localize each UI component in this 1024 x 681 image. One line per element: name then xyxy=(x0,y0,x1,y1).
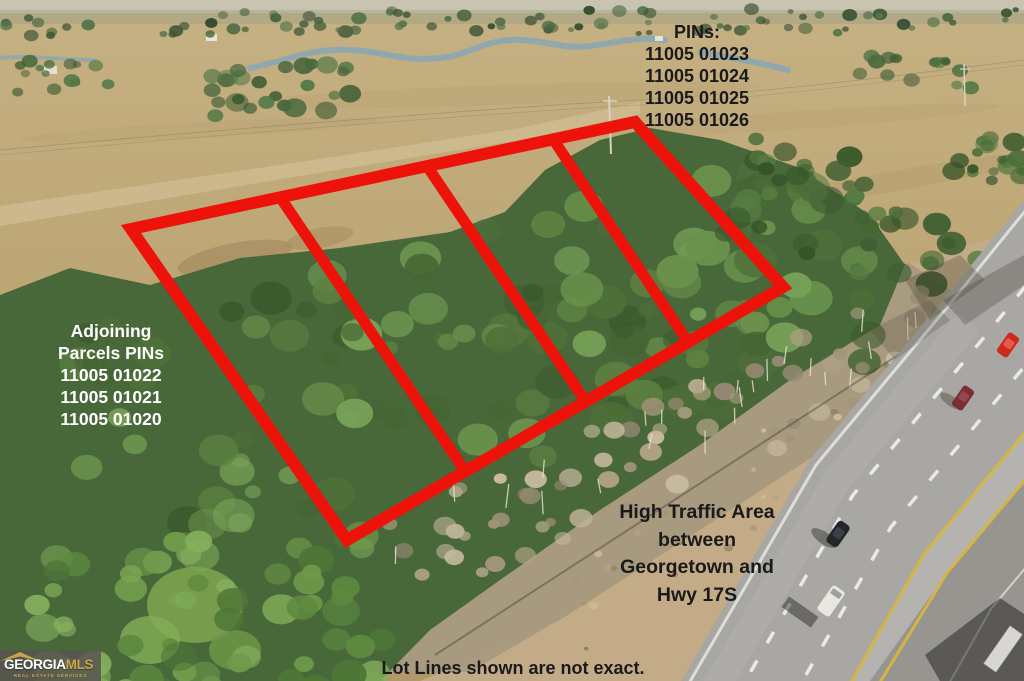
pin-value: 11005 01026 xyxy=(597,109,797,131)
pin-value: 11005 01025 xyxy=(597,87,797,109)
lot-divider-line xyxy=(280,197,465,471)
brand-tagline: REAL ESTATE SERVICES xyxy=(0,673,101,678)
adjoining-title-line2: Parcels PINs xyxy=(11,342,211,364)
adjoining-pin-value: 11005 01022 xyxy=(11,364,211,386)
traffic-note-line: between xyxy=(587,527,807,555)
traffic-note-line: High Traffic Area xyxy=(587,499,807,527)
brand-mls: MLS xyxy=(66,657,94,672)
traffic-note: High Traffic Area between Georgetown and… xyxy=(587,499,807,609)
brand-wordmark: GEORGIAMLS xyxy=(4,658,93,671)
adjoining-pin-value: 11005 01021 xyxy=(11,386,211,408)
aerial-photo: PINs: 11005 01023 11005 01024 11005 0102… xyxy=(0,0,1024,681)
pin-value: 11005 01024 xyxy=(597,65,797,87)
adjoining-pin-value: 11005 01020 xyxy=(11,408,211,430)
lot-lines-disclaimer: Lot Lines shown are not exact. xyxy=(353,658,673,678)
brand-georgia: GEORGIA xyxy=(4,657,66,672)
pins-title: PINs: xyxy=(597,21,797,43)
pins-callout: PINs: 11005 01023 11005 01024 11005 0102… xyxy=(597,21,797,131)
disclaimer-text: Lot Lines shown are not exact. xyxy=(353,658,673,678)
traffic-note-line: Hwy 17S xyxy=(587,582,807,610)
adjoining-parcels-callout: Adjoining Parcels PINs 11005 01022 11005… xyxy=(11,320,211,430)
georgia-mls-watermark: GEORGIAMLS REAL ESTATE SERVICES xyxy=(0,650,101,681)
adjoining-title-line1: Adjoining xyxy=(11,320,211,342)
lot-divider-line xyxy=(553,139,688,342)
pin-value: 11005 01023 xyxy=(597,43,797,65)
traffic-note-line: Georgetown and xyxy=(587,554,807,582)
lot-divider-line xyxy=(427,166,586,402)
